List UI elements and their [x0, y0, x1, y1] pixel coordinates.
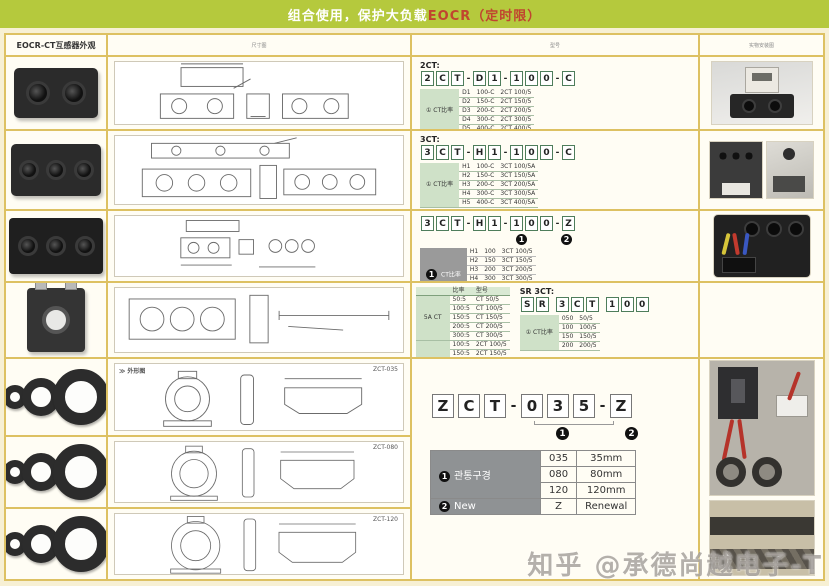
3ct-wired-photo — [710, 142, 762, 198]
ct-hole-icon — [26, 81, 50, 105]
bullet-1-icon: 1 — [556, 427, 569, 440]
3ct-mounted-photo — [767, 142, 813, 198]
order-code-3ct-new: 3CT-H1-100-Z 1 2 1CT比率H11003CT 100/5H215… — [412, 211, 698, 281]
dimension-drawing-2ct — [108, 57, 410, 129]
drawing-model-label: ZCT-120 — [373, 516, 398, 523]
section-label-3ct: 3CT: — [420, 135, 698, 144]
wire-red — [732, 233, 740, 255]
code-boxes-3ct-new: 3CT-H1-100-Z — [420, 216, 698, 231]
drawing-model-label: ZCT-035 — [373, 366, 398, 373]
ct-hole-icon — [74, 160, 94, 180]
round-ct-drawing — [115, 288, 403, 352]
zct-option-table: 1관통구경03535mm08080mm120120mm2NewZRenewal — [430, 450, 698, 515]
ct-bore-icon — [42, 306, 70, 334]
bullet-2-icon: 2 — [625, 427, 638, 440]
code-group-brace — [534, 421, 614, 425]
ratio-overview-table: 比率型号5A CT50:5CT 50/5100:5CT 100/5150:5CT… — [416, 287, 510, 357]
ct-hole-icon — [18, 236, 38, 256]
ct-hole-icon — [46, 236, 66, 256]
ratio-table-3ct: ① CT比率H1100-C3CT 100/5AH2150-C3CT 150/5A… — [420, 163, 698, 208]
zct-120-drawing — [115, 514, 403, 574]
code-boxes-zct: ZCT-035-Z — [430, 394, 698, 418]
code-boxes-srct: SR3CT100 — [520, 297, 650, 312]
drawing-header: ≫ 外形图 — [119, 366, 145, 375]
dimension-drawing-zct-035: ≫ 外形图 ZCT-035 — [108, 359, 410, 435]
empty-cell — [700, 283, 823, 357]
zhihu-watermark: 知乎 @承德尚越电子-T — [527, 545, 823, 582]
section-label-2ct: 2CT: — [420, 61, 698, 70]
catalog-table: EOCR-CT互感器外观 尺寸图 型号 实物安装图 2CT: 2CT-D1-10… — [4, 33, 825, 581]
bullet-icon: 1 — [426, 269, 437, 280]
3ct-large-block-image — [9, 218, 103, 274]
order-code-srct: 比率型号5A CT50:5CT 50/5100:5CT 100/5150:5CT… — [412, 283, 698, 357]
relay-on-ct-image — [745, 67, 779, 93]
order-code-3ct: 3CT: 3CT-H1-100-C ① CT比率H1100-C3CT 100/5… — [412, 131, 698, 209]
zct-rings-image — [6, 369, 106, 425]
product-photo-zct-set-2 — [6, 437, 106, 507]
col-header-installation: 实物安装图 — [700, 35, 823, 55]
product-photo-zct-set-3 — [6, 509, 106, 579]
toroid-ct-image — [752, 457, 782, 487]
page-title-banner: 组合使用，保护大负载 EOCR（定时限） — [0, 0, 829, 28]
product-photo-round-ct — [6, 283, 106, 357]
wire-yellow — [721, 233, 730, 255]
order-code-2ct: 2CT: 2CT-D1-100-C ① CT比率D1100-C2CT 100/5… — [412, 57, 698, 129]
product-photo-2ct — [6, 57, 106, 129]
install-photo-2ct-relay — [700, 57, 823, 129]
dimension-drawing-3ct-large — [108, 211, 410, 281]
bullet-1-icon: 1 — [516, 234, 527, 245]
2ct-drawing — [115, 62, 403, 124]
code-boxes-3ct: 3CT-H1-100-C — [420, 145, 698, 160]
install-photo-3ct-large — [700, 211, 823, 281]
3ct-large-drawing — [115, 216, 403, 276]
srct-block: SR 3CT: SR3CT100 ① CT比率05050/5100100/515… — [520, 287, 650, 357]
dimension-drawing-zct-120: ZCT-120 — [108, 509, 410, 579]
3ct-block-image — [11, 144, 101, 196]
2ct-block-image — [14, 68, 98, 118]
panel-install-photo — [710, 361, 814, 495]
product-photo-3ct-large — [6, 211, 106, 281]
ct-hole-icon — [75, 236, 95, 256]
product-photo-zct-set-1 — [6, 359, 106, 435]
dimension-drawing-zct-080: ZCT-080 — [108, 437, 410, 507]
bullet-icon: 1 — [439, 471, 450, 482]
code-bullet-markers: 1 2 — [516, 234, 698, 245]
col-header-appearance: EOCR-CT互感器外观 — [6, 35, 106, 55]
banner-text-accent: EOCR（定时限） — [428, 5, 541, 24]
3ct-drawing — [115, 136, 403, 204]
product-photo-3ct — [6, 131, 106, 209]
zct-bullet-markers: 1 2 — [556, 427, 698, 440]
circuit-breaker-image — [718, 367, 758, 419]
zct-080-drawing — [115, 442, 403, 502]
ct-hole-icon — [62, 81, 86, 105]
ct-hole-icon — [19, 160, 39, 180]
col-header-model: 型号 — [412, 35, 698, 55]
install-photo-3ct — [700, 131, 823, 209]
ratio-table-3ct-new: 1CT比率H11003CT 100/5H21503CT 150/5H32003C… — [420, 248, 698, 281]
code-boxes-2ct: 2CT-D1-100-C — [420, 71, 698, 86]
col-header-dimensions: 尺寸图 — [108, 35, 410, 55]
ratio-table-srct: ① CT比率05050/5100100/5150150/5200200/5 — [520, 315, 650, 351]
section-label-srct: SR 3CT: — [520, 287, 650, 296]
dimension-drawing-3ct — [108, 131, 410, 209]
banner-text-main: 组合使用，保护大负载 — [288, 5, 428, 24]
zct-035-drawing — [115, 364, 403, 430]
round-ct-image — [27, 288, 85, 352]
bullet-2-icon: 2 — [561, 234, 572, 245]
bullet-icon: 2 — [439, 501, 450, 512]
zct-ring-large-icon — [53, 369, 106, 425]
ct-hole-icon — [46, 160, 66, 180]
dimension-drawing-round-ct — [108, 283, 410, 357]
ratio-table-2ct: ① CT比率D1100-C2CT 100/5D2150-C2CT 150/5D3… — [420, 89, 698, 129]
toroid-ct-image — [716, 457, 746, 487]
drawing-model-label: ZCT-080 — [373, 444, 398, 451]
